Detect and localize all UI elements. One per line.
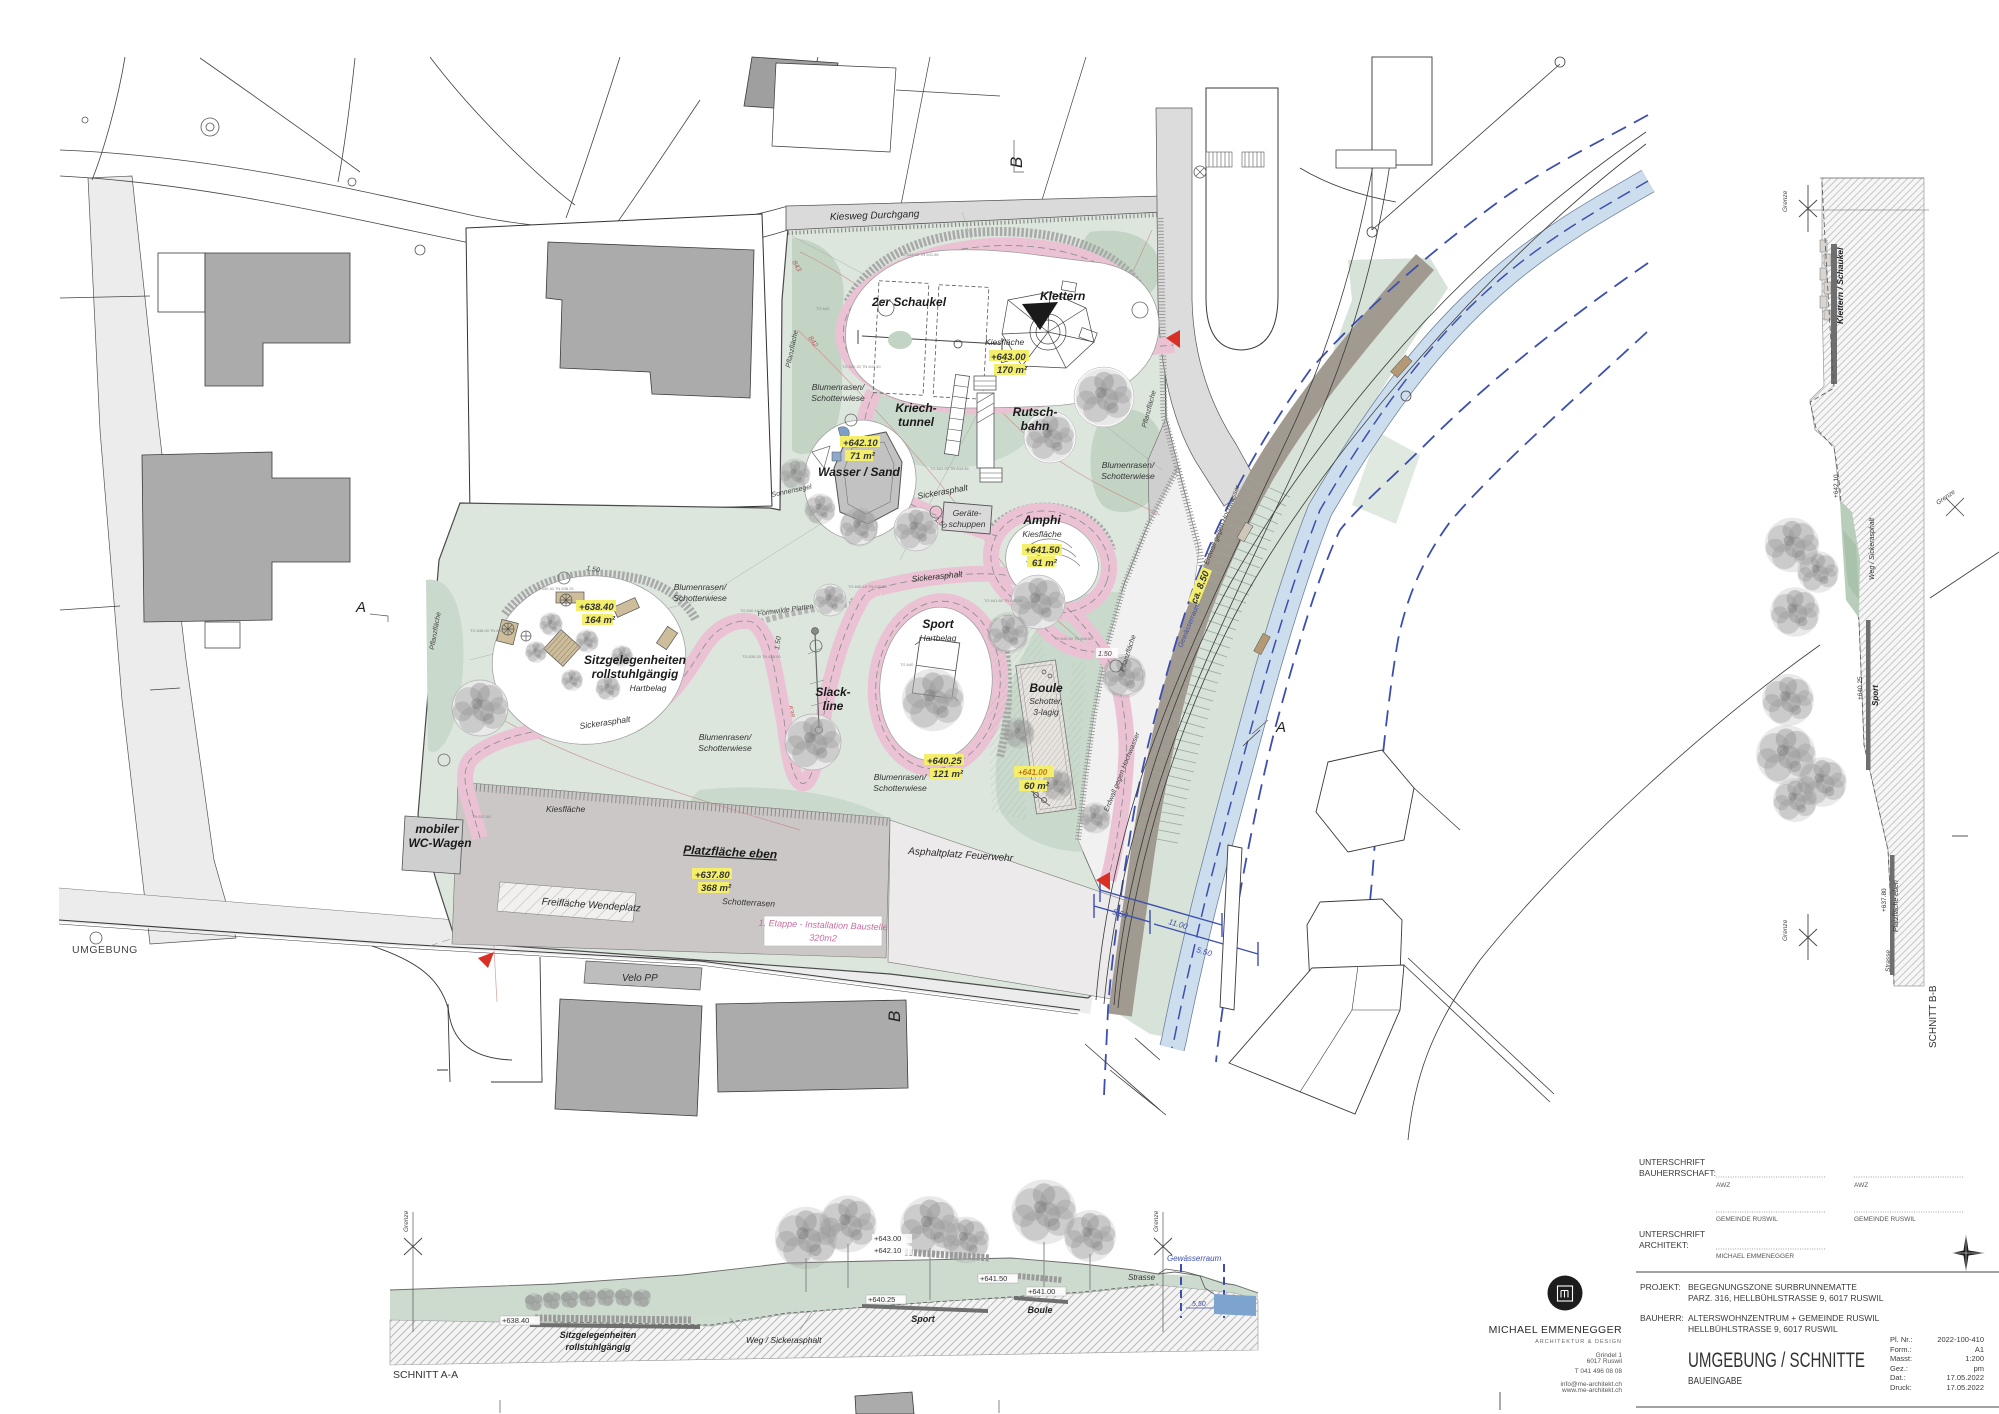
svg-text:BAUHERRSCHAFT:: BAUHERRSCHAFT:	[1639, 1168, 1716, 1178]
svg-text:ARCHITEKT:: ARCHITEKT:	[1639, 1240, 1689, 1250]
svg-text:MICHAEL EMMENEGGER: MICHAEL EMMENEGGER	[1716, 1253, 1794, 1260]
svg-text:17.05.2022: 17.05.2022	[1946, 1373, 1984, 1382]
svg-text:Sitzgelegenheiten: Sitzgelegenheiten	[584, 653, 686, 667]
svg-text:A1: A1	[1975, 1345, 1984, 1354]
svg-text:Geräte-: Geräte-	[953, 508, 982, 518]
svg-text:Grenze: Grenze	[1782, 190, 1789, 212]
svg-text:AWZ: AWZ	[1854, 1182, 1868, 1189]
svg-text:+637.80: +637.80	[695, 870, 730, 881]
svg-text:T 041 496 08 08: T 041 496 08 08	[1575, 1368, 1623, 1375]
svg-text:A: A	[1275, 719, 1286, 736]
svg-text:Boule: Boule	[1027, 1305, 1052, 1315]
svg-text:Strasse: Strasse	[1128, 1273, 1156, 1282]
svg-text:Wasser / Sand: Wasser / Sand	[818, 465, 900, 479]
svg-text:+641.50: +641.50	[980, 1274, 1007, 1283]
svg-text:+637.80: +637.80	[1881, 888, 1888, 912]
svg-text:AWZ: AWZ	[1716, 1182, 1730, 1189]
svg-text:Gewässerraum: Gewässerraum	[1167, 1254, 1222, 1263]
svg-text:+642.10: +642.10	[1833, 474, 1840, 498]
svg-text:TG 640.16 TN 641.30: TG 640.16 TN 641.30	[740, 608, 779, 613]
svg-text:Druck:: Druck:	[1890, 1383, 1912, 1392]
svg-text:Dat.:: Dat.:	[1890, 1373, 1906, 1382]
svg-text:Grenze: Grenze	[403, 1210, 410, 1232]
svg-text:3-lagig: 3-lagig	[1033, 707, 1059, 717]
svg-text:Platzfläche eben: Platzfläche eben	[1893, 880, 1900, 932]
svg-text:GEMEINDE RUSWIL: GEMEINDE RUSWIL	[1716, 1216, 1778, 1223]
svg-text:UMGEBUNG / SCHNITTE: UMGEBUNG / SCHNITTE	[1688, 1349, 1865, 1372]
svg-text:WC-Wagen: WC-Wagen	[408, 836, 471, 850]
svg-text:Weg / Sickerasphalt: Weg / Sickerasphalt	[746, 1335, 822, 1345]
svg-text:Hartbelag: Hartbelag	[630, 683, 667, 693]
svg-text:+640.25: +640.25	[927, 756, 962, 767]
svg-text:TG 640.40 TN 638.25: TG 640.40 TN 638.25	[535, 586, 574, 591]
svg-text:320m2: 320m2	[809, 933, 837, 944]
svg-text:UNTERSCHRIFT: UNTERSCHRIFT	[1639, 1157, 1705, 1167]
svg-text:5.50: 5.50	[1192, 1301, 1206, 1308]
svg-text:+642.10: +642.10	[843, 438, 878, 449]
svg-text:+640.25: +640.25	[868, 1295, 895, 1304]
svg-text:+643.00: +643.00	[991, 352, 1026, 363]
svg-text:www.me-architekt.ch: www.me-architekt.ch	[1561, 1387, 1622, 1394]
svg-text:71 m²: 71 m²	[850, 451, 876, 462]
svg-text:164 m²: 164 m²	[585, 615, 616, 626]
svg-text:Kiesfläche: Kiesfläche	[985, 337, 1024, 347]
svg-text:1.50: 1.50	[1098, 651, 1112, 658]
svg-text:Masst:: Masst:	[1890, 1354, 1912, 1363]
svg-text:+638.40: +638.40	[579, 602, 614, 613]
svg-text:Rutsch-: Rutsch-	[1013, 405, 1058, 419]
svg-text:TG 642: TG 642	[816, 306, 830, 311]
svg-text:+641.00: +641.00	[1018, 768, 1048, 777]
svg-text:BAUEINGABE: BAUEINGABE	[1688, 1376, 1742, 1387]
svg-text:PARZ. 316, HELLBÜHLSTRASSE 9,: PARZ. 316, HELLBÜHLSTRASSE 9, 6017 RUSWI…	[1688, 1293, 1884, 1303]
svg-text:+643.00: +643.00	[874, 1234, 901, 1243]
svg-text:UNTERSCHRIFT: UNTERSCHRIFT	[1639, 1229, 1705, 1239]
svg-text:Grenze: Grenze	[1153, 1210, 1160, 1232]
svg-text:2er Schaukel: 2er Schaukel	[871, 295, 947, 309]
svg-text:UMGEBUNG: UMGEBUNG	[72, 944, 138, 956]
svg-text:Schotterwiese: Schotterwiese	[873, 783, 927, 793]
svg-text:TG 639.20 TN 638.00: TG 639.20 TN 638.00	[742, 654, 781, 659]
svg-text:tunnel: tunnel	[898, 415, 935, 429]
svg-text:BAUHERR:: BAUHERR:	[1640, 1313, 1684, 1323]
svg-text:1:200: 1:200	[1965, 1354, 1984, 1363]
svg-text:60 m²: 60 m²	[1024, 781, 1050, 792]
svg-text:Kiesfläche: Kiesfläche	[546, 804, 585, 814]
svg-text:TG 641.00 TN 643.95: TG 641.00 TN 643.95	[930, 466, 969, 471]
svg-text:Sport: Sport	[1871, 685, 1880, 706]
svg-text:Slack-: Slack-	[815, 685, 850, 699]
svg-text:Sport: Sport	[922, 617, 954, 631]
svg-text:Hartbelag: Hartbelag	[920, 633, 957, 643]
svg-text:Klettern / Schaukel: Klettern / Schaukel	[1835, 247, 1845, 324]
svg-text:TG 640.18 TN 640.50: TG 640.18 TN 640.50	[848, 584, 887, 589]
svg-text:BEGEGNUNGSZONE SURBRUNNEMATTE: BEGEGNUNGSZONE SURBRUNNEMATTE	[1688, 1282, 1857, 1292]
svg-text:2022-100-410: 2022-100-410	[1937, 1335, 1984, 1344]
svg-text:17.05.2022: 17.05.2022	[1946, 1383, 1984, 1392]
svg-text:Sport: Sport	[911, 1314, 936, 1324]
svg-text:Kiesfläche: Kiesfläche	[1022, 529, 1061, 539]
svg-text:Pl. Nr.:: Pl. Nr.:	[1890, 1335, 1913, 1344]
svg-text:Blumenrasen/: Blumenrasen/	[674, 582, 728, 592]
svg-text:HELLBÜHLSTRASSE 9, 6017 RUSWIL: HELLBÜHLSTRASSE 9, 6017 RUSWIL	[1688, 1324, 1838, 1334]
svg-text:TG 638.00 TN 637.90: TG 638.00 TN 637.90	[470, 628, 509, 633]
svg-text:mobiler: mobiler	[415, 822, 460, 836]
svg-text:TG 641.20 TN 643.40: TG 641.20 TN 643.40	[842, 364, 881, 369]
svg-text:+640.25: +640.25	[1857, 676, 1864, 700]
svg-text:6017 Ruswil: 6017 Ruswil	[1587, 1358, 1623, 1365]
svg-text:Blumenrasen/: Blumenrasen/	[1102, 460, 1156, 470]
svg-text:Schotterwiese: Schotterwiese	[1101, 471, 1155, 481]
svg-text:bahn: bahn	[1021, 419, 1050, 433]
svg-text:Grenze: Grenze	[1782, 919, 1789, 941]
svg-text:Blumenrasen/: Blumenrasen/	[812, 382, 866, 392]
svg-text:TG 640.50 TN 640.60: TG 640.50 TN 640.60	[1054, 636, 1093, 641]
svg-text:Klettern: Klettern	[1040, 289, 1085, 303]
svg-text:Velo PP: Velo PP	[622, 973, 658, 984]
svg-text:SCHNITT B-B: SCHNITT B-B	[1928, 985, 1939, 1048]
svg-text:MICHAEL EMMENEGGER: MICHAEL EMMENEGGER	[1489, 1324, 1622, 1336]
svg-text:B: B	[885, 1011, 904, 1022]
svg-text:SCHNITT A-A: SCHNITT A-A	[393, 1369, 458, 1381]
svg-text:TG 640: TG 640	[900, 662, 914, 667]
svg-text:Strasse: Strasse	[1885, 950, 1892, 972]
svg-text:Kriech-: Kriech-	[895, 401, 936, 415]
svg-text:61 m²: 61 m²	[1032, 558, 1058, 569]
svg-text:A: A	[355, 599, 366, 616]
svg-text:Schotterwiese: Schotterwiese	[811, 393, 865, 403]
svg-text:TG 643.00 TN 641.56: TG 643.00 TN 641.56	[900, 252, 939, 257]
svg-text:Schotter,: Schotter,	[1029, 696, 1063, 706]
svg-text:Amphi: Amphi	[1022, 513, 1061, 527]
svg-text:Blumenrasen/: Blumenrasen/	[699, 732, 753, 742]
svg-text:Gez.:: Gez.:	[1890, 1364, 1908, 1373]
svg-text:rollstuhlgängig: rollstuhlgängig	[592, 667, 679, 681]
svg-text:+642.10: +642.10	[874, 1246, 901, 1255]
svg-text:PROJEKT:: PROJEKT:	[1640, 1282, 1681, 1292]
svg-text:B: B	[1007, 157, 1026, 168]
svg-text:+641.50: +641.50	[1025, 545, 1060, 556]
svg-text:121 m²: 121 m²	[933, 769, 964, 780]
svg-text:rollstuhlgängig: rollstuhlgängig	[566, 1342, 631, 1352]
svg-text:368 m²: 368 m²	[701, 883, 732, 894]
svg-text:170 m²: 170 m²	[997, 365, 1028, 376]
svg-text:Schotterwiese: Schotterwiese	[698, 743, 752, 753]
svg-text:Weg / Sickerasphalt: Weg / Sickerasphalt	[1869, 517, 1876, 580]
svg-text:pm: pm	[1974, 1364, 1984, 1373]
svg-text:TG 641.60 TN 640.56: TG 641.60 TN 640.56	[984, 598, 1023, 603]
svg-text:ALTERSWOHNZENTRUM + GEMEINDE R: ALTERSWOHNZENTRUM + GEMEINDE RUSWIL	[1688, 1313, 1880, 1323]
svg-text:schuppen: schuppen	[949, 519, 986, 529]
svg-text:Form.:: Form.:	[1890, 1345, 1912, 1354]
svg-text:ARCHITEKTUR & DESIGN: ARCHITEKTUR & DESIGN	[1535, 1339, 1622, 1345]
svg-text:+641.00: +641.00	[1028, 1287, 1055, 1296]
svg-text:Boule: Boule	[1029, 681, 1063, 695]
svg-text:Blumenrasen/: Blumenrasen/	[874, 772, 928, 782]
svg-text:GEMEINDE RUSWIL: GEMEINDE RUSWIL	[1854, 1216, 1916, 1223]
svg-text:TN 637.80: TN 637.80	[472, 814, 491, 819]
svg-text:+638.40: +638.40	[502, 1316, 529, 1325]
svg-text:Sitzgelegenheiten: Sitzgelegenheiten	[560, 1330, 637, 1340]
svg-text:Schotterwiese: Schotterwiese	[673, 593, 727, 603]
svg-text:line: line	[823, 699, 844, 713]
